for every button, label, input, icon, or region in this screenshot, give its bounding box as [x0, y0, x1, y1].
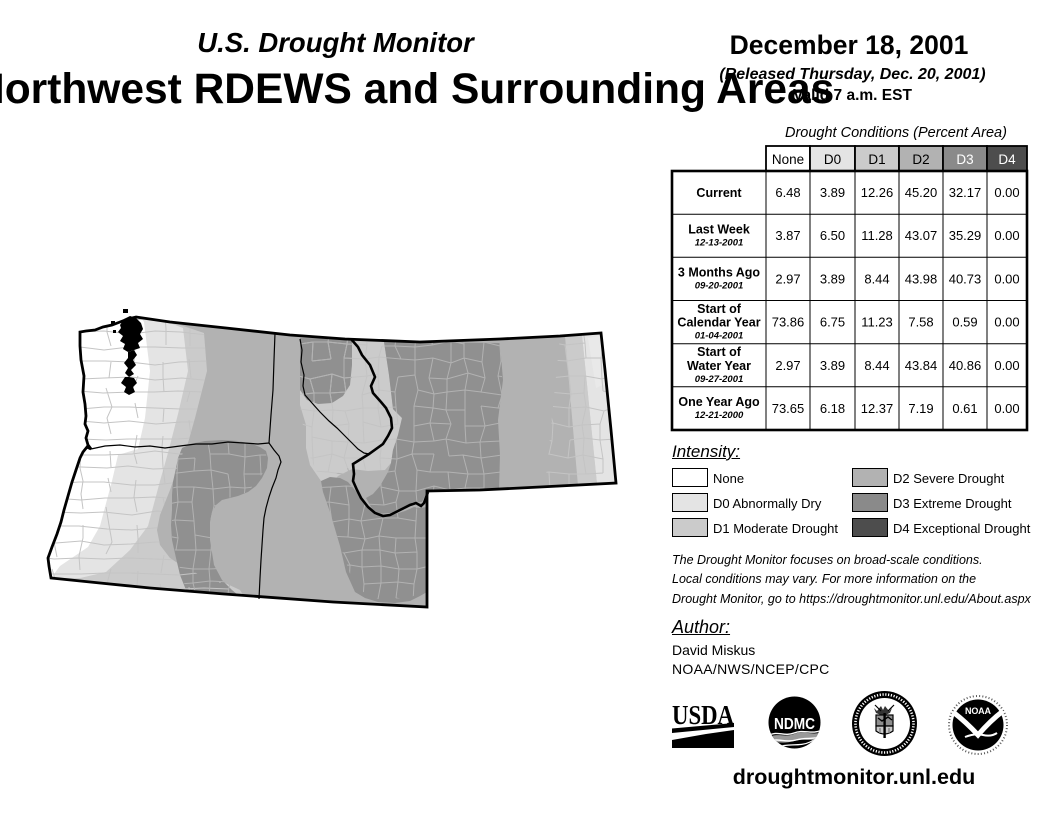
- svg-text:NOAA: NOAA: [965, 706, 992, 716]
- svg-text:Current: Current: [696, 186, 742, 200]
- svg-text:09-27-2001: 09-27-2001: [695, 374, 744, 385]
- svg-text:0.00: 0.00: [994, 315, 1019, 330]
- svg-text:0.00: 0.00: [994, 401, 1019, 416]
- svg-text:None: None: [772, 152, 804, 167]
- svg-text:6.48: 6.48: [775, 185, 800, 200]
- svg-text:Water Year: Water Year: [687, 359, 751, 373]
- svg-text:43.07: 43.07: [905, 228, 938, 243]
- svg-text:32.17: 32.17: [949, 185, 982, 200]
- svg-text:40.86: 40.86: [949, 358, 982, 373]
- svg-text:2.97: 2.97: [775, 271, 800, 286]
- svg-text:6.75: 6.75: [820, 315, 845, 330]
- svg-text:D1: D1: [868, 152, 885, 167]
- svg-text:Start of: Start of: [697, 302, 742, 316]
- svg-text:11.28: 11.28: [861, 228, 893, 243]
- svg-text:09-20-2001: 09-20-2001: [695, 281, 744, 292]
- svg-text:12-13-2001: 12-13-2001: [695, 238, 744, 249]
- svg-text:43.98: 43.98: [905, 271, 938, 286]
- svg-text:0.61: 0.61: [952, 401, 977, 416]
- svg-text:3.89: 3.89: [820, 358, 845, 373]
- svg-text:0.00: 0.00: [994, 271, 1019, 286]
- svg-text:12.26: 12.26: [861, 185, 894, 200]
- svg-text:3.89: 3.89: [820, 271, 845, 286]
- svg-text:43.84: 43.84: [905, 358, 938, 373]
- svg-text:73.86: 73.86: [772, 315, 805, 330]
- svg-text:12-21-2000: 12-21-2000: [695, 410, 744, 421]
- svg-text:45.20: 45.20: [905, 185, 938, 200]
- svg-text:40.73: 40.73: [949, 271, 982, 286]
- svg-text:01-04-2001: 01-04-2001: [695, 331, 744, 342]
- svg-text:Calendar Year: Calendar Year: [677, 316, 760, 330]
- svg-text:One Year Ago: One Year Ago: [678, 395, 760, 409]
- svg-text:0.00: 0.00: [994, 185, 1019, 200]
- svg-text:Last Week: Last Week: [688, 223, 750, 237]
- svg-text:D3: D3: [956, 152, 973, 167]
- svg-text:6.18: 6.18: [820, 401, 845, 416]
- svg-text:0.00: 0.00: [994, 358, 1019, 373]
- svg-text:Start of: Start of: [697, 345, 742, 359]
- svg-text:3.87: 3.87: [775, 228, 800, 243]
- svg-text:35.29: 35.29: [949, 228, 982, 243]
- svg-text:NDMC: NDMC: [774, 716, 815, 733]
- svg-text:3 Months Ago: 3 Months Ago: [678, 266, 761, 280]
- svg-text:8.44: 8.44: [864, 271, 889, 286]
- svg-text:D0: D0: [824, 152, 841, 167]
- svg-text:0.00: 0.00: [994, 228, 1019, 243]
- svg-text:2.97: 2.97: [775, 358, 800, 373]
- svg-text:6.50: 6.50: [820, 228, 845, 243]
- svg-text:0.59: 0.59: [952, 315, 977, 330]
- svg-text:8.44: 8.44: [864, 358, 889, 373]
- svg-text:11.23: 11.23: [861, 315, 893, 330]
- svg-text:D4: D4: [998, 152, 1016, 167]
- svg-text:D2: D2: [912, 152, 929, 167]
- svg-text:73.65: 73.65: [772, 401, 805, 416]
- svg-text:7.19: 7.19: [908, 401, 933, 416]
- svg-text:3.89: 3.89: [820, 185, 845, 200]
- svg-text:7.58: 7.58: [908, 315, 933, 330]
- svg-text:12.37: 12.37: [861, 401, 894, 416]
